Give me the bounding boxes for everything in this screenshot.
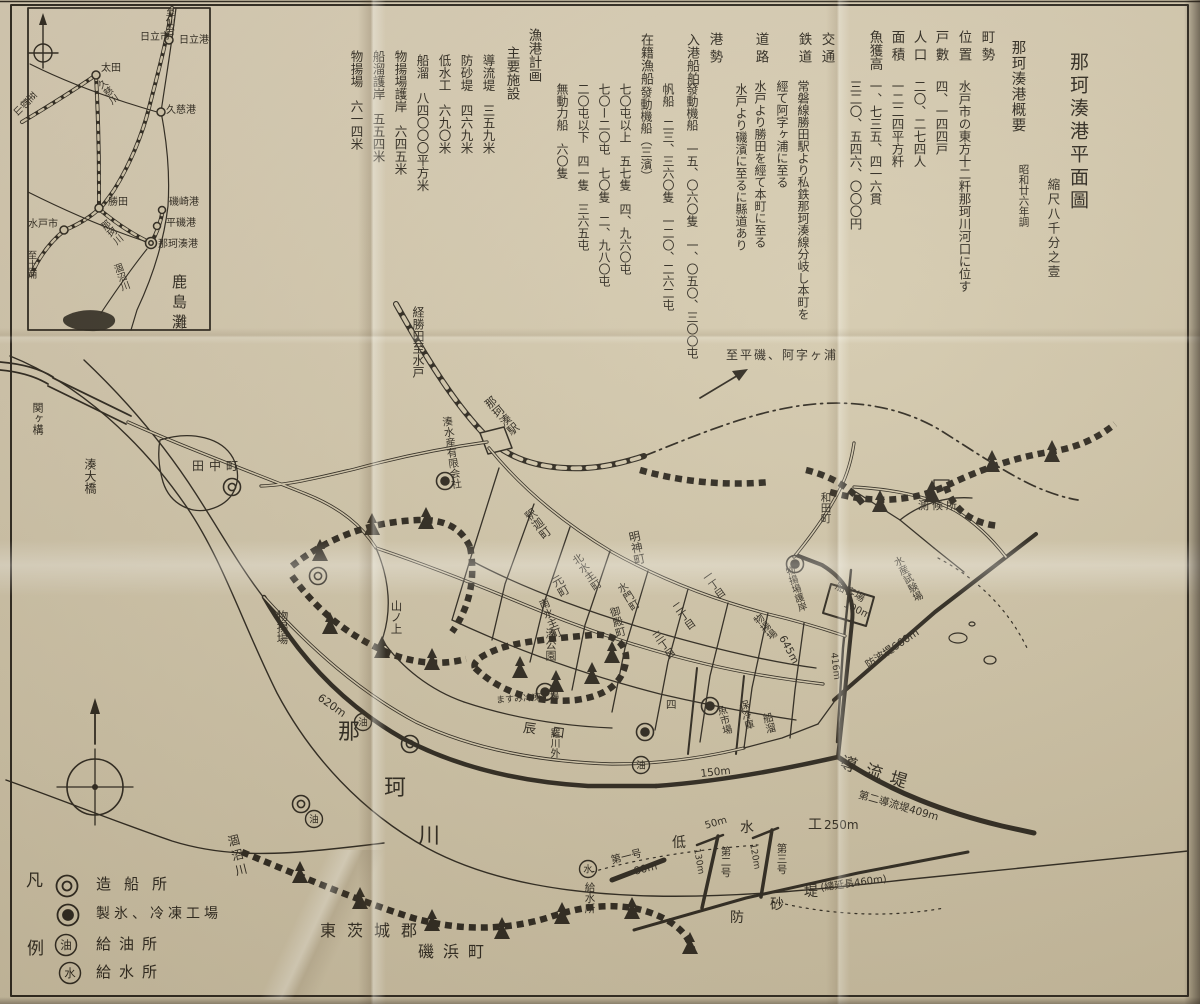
stats-col-14-value: 帆船 二三、三六〇隻 一二〇、二六二屯 — [662, 83, 674, 311]
map-label-minato-park: 湊公園 — [545, 628, 556, 661]
stats-col-4-label: 面積 — [890, 30, 904, 65]
legend-item-water-station: 給水所 — [96, 965, 165, 980]
map-label-bosatei-char2: 砂 — [770, 898, 784, 912]
map-label-to-hiraiso: 至平磯、阿字ヶ浦 — [726, 349, 838, 361]
map-label-len-416: 416m — [829, 652, 842, 680]
stats-col-25-value: 船溜 八四〇〇〇平方米 — [415, 54, 428, 192]
inset-label-hiraiso-port: 平磯港 — [166, 219, 196, 229]
stats-col-0-label: 町勢 — [980, 30, 994, 65]
shipyard-icons — [224, 479, 419, 813]
stats-col-7-label: 交通 — [820, 32, 834, 67]
stats-col-5-value: 一、七三五、四一六貫 — [868, 80, 881, 205]
map-scale: 縮尺八千分之壹 — [1046, 178, 1059, 280]
stats-col-21-label: 主要施設 — [505, 46, 519, 100]
stats-col-15-value: 發動機船（三濱） — [640, 86, 652, 182]
inset-label-isozaki-port: 磯崎港 — [169, 198, 199, 208]
inset-label-kashima-nada: 鹿島灘 — [170, 274, 185, 334]
stats-col-22-value: 導流堤 三五九米 — [481, 54, 494, 154]
inset-label-hitachi-city: 日立市 — [140, 33, 170, 43]
ice-plant-icons — [437, 473, 804, 741]
map-label-sekigamae: 関ヶ構 — [32, 402, 43, 435]
compass-rose — [57, 698, 133, 825]
stats-col-8-label: 鉄道 — [797, 32, 811, 67]
stats-col-5-label: 魚獲高 — [868, 30, 882, 71]
inset-label-nakaminato-port: 那珂湊港 — [158, 240, 198, 250]
map-label-via-katsuta: 経勝田至水戸 — [412, 306, 424, 378]
map-label-teisui-char3: 工 — [808, 818, 822, 832]
stats-col-28-value: 物揚場 六一四米 — [349, 50, 362, 150]
tree-belts — [242, 424, 1115, 953]
map-label-rakawa-soto: 羅川外 — [548, 728, 558, 758]
stats-col-3-value: 二〇、二七四人 — [912, 80, 925, 168]
stats-col-12-label: 港勢 — [708, 32, 722, 67]
map-label-bosatei-char3: 堤 — [804, 885, 818, 899]
overview-survey-note: 昭和廿六年調 — [1017, 164, 1028, 227]
stats-col-16-value: 七〇屯以上 五七隻 四、九六〇屯 — [619, 83, 631, 275]
scanned-harbor-map: 油 油 油 水 油 水 — [0, 0, 1200, 1004]
stats-col-8-value: 常磐線勝田駅より私鉄那珂湊線分岐し本町を — [797, 80, 809, 320]
stats-col-24-value: 低水工 六九〇米 — [437, 54, 450, 154]
page-title: 那珂湊港平面圖 — [1068, 52, 1087, 213]
naka-river-lines — [6, 356, 1188, 896]
legend-item-shipyard: 造船所 — [96, 877, 180, 892]
water-icon: 水 — [583, 863, 593, 875]
map-label-tanaka-cho: 田中町 — [192, 460, 243, 472]
stats-col-19-value: 無動力船 六〇隻 — [556, 83, 568, 179]
map-label-groyne3: 第三号 — [776, 843, 787, 875]
water-station-icons: 水 — [580, 861, 597, 878]
map-label-weather-station: 測候所 — [918, 500, 960, 511]
map-label-teisui-char2: 水 — [740, 821, 754, 835]
inset-label-to-tsuchiura: 至土浦 — [25, 250, 35, 279]
inset-hinuma-lake — [63, 310, 115, 331]
map-label-bosatei-char1: 防 — [730, 911, 744, 925]
water-icon: 水 — [64, 967, 76, 980]
inset-label-kuji-port: 久慈港 — [166, 106, 196, 116]
stats-col-1-value: 水戸市の東方十二粁那珂川河口に位す — [957, 80, 970, 293]
map-label-yamanoue: 山ノ上 — [390, 600, 402, 635]
stats-col-2-value: 四、一四四戸 — [934, 80, 947, 155]
oil-icon: 油 — [60, 938, 72, 952]
stats-col-11-value: 水戸より磯濱に至るに縣道あり — [735, 83, 747, 251]
offshore-islets — [949, 622, 996, 664]
legend-item-oil-station: 給油所 — [96, 937, 165, 952]
stats-col-9-value: 經て阿字ヶ浦に至る — [776, 80, 788, 188]
map-label-groyne2: 第二号 — [720, 846, 731, 878]
stats-col-13-label: 入港船舶 — [686, 33, 699, 85]
stats-col-23-value: 防砂堤 四六九米 — [459, 54, 472, 154]
oil-icon: 油 — [636, 759, 646, 771]
map-label-naka-river-char1: 那 — [338, 722, 360, 744]
stats-col-13-value: 發動機船 一五、〇六〇隻 一、〇五〇、三〇〇屯 — [686, 83, 698, 359]
map-label-wada-cho: 和田町 — [820, 492, 831, 524]
map-label-naka-river-char3: 川 — [418, 826, 440, 848]
stats-col-3-label: 人口 — [912, 30, 926, 65]
minato-bridge-lines — [0, 362, 131, 424]
inset-label-katsuta: 勝田 — [108, 198, 128, 208]
map-label-kyusuisho: 給水所 — [584, 882, 595, 914]
inset-railways — [22, 8, 172, 275]
stats-col-26-value: 物揚場護岸 六四五米 — [393, 50, 406, 175]
map-label-len-250: 250m — [824, 819, 859, 831]
stats-col-2-label: 戸數 — [934, 30, 948, 65]
stats-col-18-value: 二〇屯以下 四一隻 三六五屯 — [577, 83, 589, 251]
legend-icons: 油 水 — [56, 876, 81, 984]
stats-col-4-value: 一二二四平方粁 — [890, 80, 903, 168]
map-label-district: 東茨城郡 — [320, 923, 428, 939]
inset-rivers — [28, 64, 157, 313]
map-label-yon: 四 — [666, 700, 677, 711]
stats-col-17-value: 七〇ー二〇屯 七〇隻 二、九八〇屯 — [598, 83, 610, 287]
stats-col-20-label: 漁港計画 — [527, 28, 541, 82]
map-label-minato-bridge: 湊大橋 — [84, 458, 96, 494]
map-label-isohama: 磯浜町 — [418, 944, 493, 960]
inset-label-mito-city: 水戸市 — [28, 220, 58, 230]
inset-label-ota: 太田 — [101, 64, 121, 74]
map-label-naka-river-char2: 珂 — [384, 778, 406, 800]
inset-label-hitachi-port: 日立港 — [179, 36, 209, 46]
legend-rei: 例 — [27, 940, 44, 957]
legend-item-ice-plant: 製氷、冷凍工場 — [96, 907, 222, 921]
map-label-teisui-char1: 低 — [672, 836, 686, 850]
legend-fan: 凡 — [26, 872, 43, 889]
stats-col-10-label: 道路 — [754, 32, 768, 67]
stats-col-6-value: 三二〇、五四六、〇〇〇円 — [848, 80, 861, 230]
stats-col-10-value: 水戸より勝田を經て本町に至る — [754, 80, 766, 248]
map-label-monoageba-west: 物揚場 — [276, 610, 288, 645]
oil-icon: 油 — [309, 813, 319, 825]
stats-col-1-label: 位置 — [957, 30, 971, 65]
overview-heading: 那珂湊港概要 — [1010, 40, 1025, 133]
stats-col-27-value: 船溜護岸 五五四米 — [371, 50, 384, 163]
stats-col-15-label: 在籍漁船 — [640, 33, 653, 85]
